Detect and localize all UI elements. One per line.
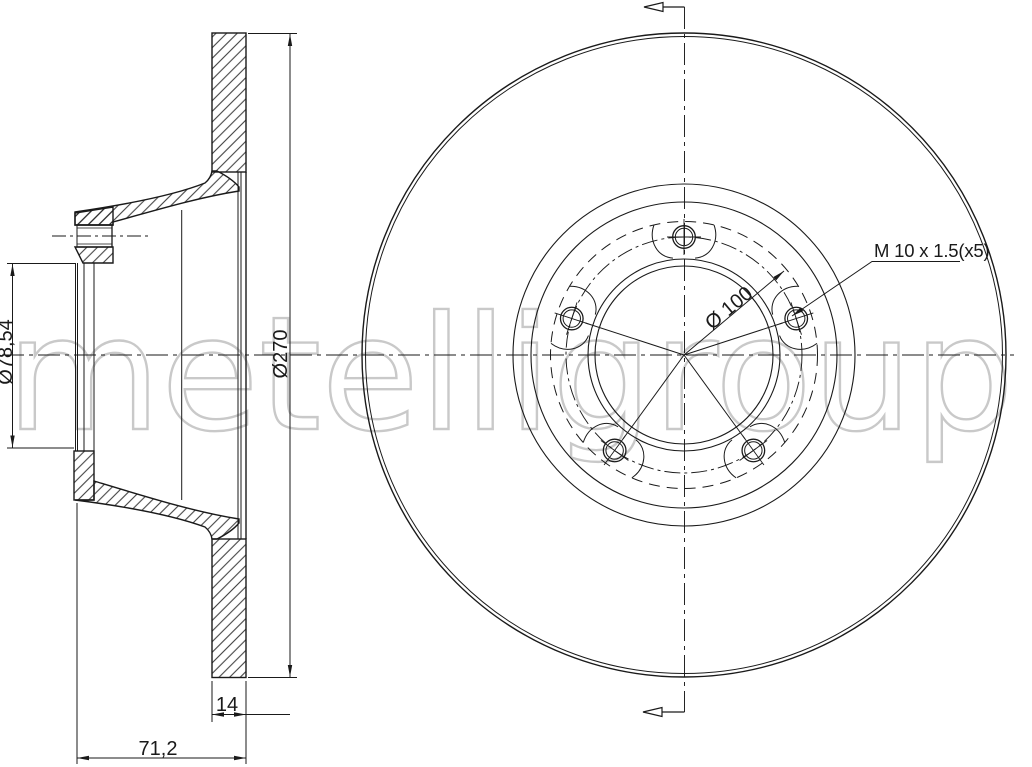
hat-cone-bottom-section [75,481,239,539]
section-arrowhead-icon [643,708,662,717]
drawing-canvas: metelligroup [0,0,1032,767]
flange-bottom-section [74,451,94,500]
thickness-label: 14 [216,694,238,716]
flange-below-hole-section [75,247,113,263]
outer-diameter-label: Ø270 [270,330,292,379]
thread-spec-label: M 10 x 1.5(x5) [874,240,989,261]
section-arrow-top [644,3,685,12]
section-arrowhead-icon [644,3,663,12]
scallop-flank-curve [652,225,673,258]
bore-diameter-label: Ø78,54 [0,319,17,385]
watermark-text: metelligroup [6,283,1014,467]
scallop-flank-curve [695,225,716,258]
friction-ring-top-section [212,33,246,172]
flange-above-hole-section [75,207,113,225]
brake-disc-technical-drawing: metelligroup [0,0,1032,767]
overall-height-label: 71,2 [139,738,178,760]
section-arrow-bottom [643,708,685,717]
friction-ring-bottom-section [212,539,246,678]
